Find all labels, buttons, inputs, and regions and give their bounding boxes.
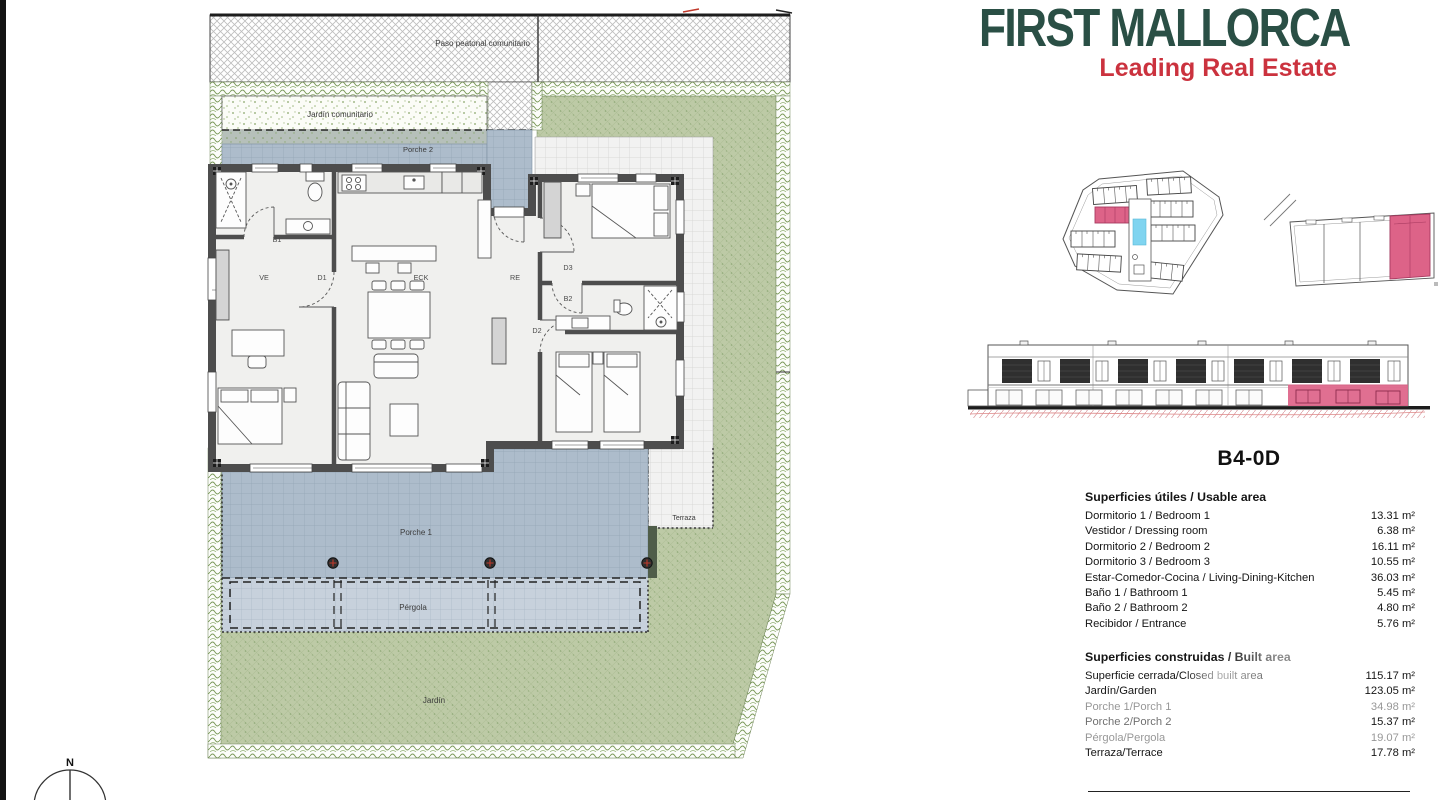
central-spine: [1129, 199, 1151, 281]
label-terraza: Terraza: [672, 515, 695, 522]
label-jardin: Jardín: [423, 696, 445, 705]
table-row: Terraza/Terrace17.78 m²: [1085, 746, 1415, 761]
room-d3: D3: [563, 263, 572, 272]
room-re: RE: [510, 273, 520, 282]
site-plan-overview: [1055, 163, 1235, 303]
table-row: Superficie cerrada/Closed built area115.…: [1085, 669, 1415, 684]
table-row: Pérgola/Pergola19.07 m²: [1085, 731, 1415, 746]
label-porche2: Porche 2: [403, 145, 433, 154]
table-row: Porche 2/Porch 215.37 m²: [1085, 715, 1415, 730]
built-table-title: Superficies construidas / Built area: [1085, 650, 1415, 664]
block-highlighted-unit: [1390, 214, 1430, 279]
compass-north-label: N: [66, 757, 74, 769]
table-row: Jardín/Garden123.05 m²: [1085, 684, 1415, 699]
built-area-table: Superficies construidas / Built area Sup…: [1085, 650, 1415, 761]
room-ve: VE: [259, 273, 269, 282]
label-jardin-comunitario: Jardín comunitario: [307, 110, 373, 119]
unit-code: B4-0D: [1085, 447, 1413, 471]
table-row: Dormitorio 2 / Bedroom 216.11 m²: [1085, 540, 1415, 555]
table-row: Porche 1/Porch 134.98 m²: [1085, 700, 1415, 715]
brochure-page: Paso peatonal comunitario Jardín comunit…: [0, 0, 1440, 800]
table-row: Baño 1 / Bathroom 15.45 m²: [1085, 586, 1415, 601]
label-porche1: Porche 1: [400, 528, 433, 537]
garden-wall-stub: [648, 526, 657, 578]
table-row: Baño 2 / Bathroom 24.80 m²: [1085, 601, 1415, 616]
elevation-highlighted-section: [1288, 385, 1408, 407]
usable-area-table: Superficies útiles / Usable area Dormito…: [1085, 490, 1415, 632]
brand-logo: FIRST MALLORCA Leading Real Estate: [979, 0, 1337, 83]
label-pergola: Pérgola: [399, 603, 427, 612]
room-b1: B1: [273, 235, 282, 244]
communal-garden: [222, 96, 532, 144]
floor-plan: Paso peatonal comunitario Jardín comunit…: [0, 0, 960, 800]
table-row: Vestidor / Dressing room6.38 m²: [1085, 524, 1415, 539]
usable-table-title: Superficies útiles / Usable area: [1085, 490, 1415, 504]
site-plan-block: [1262, 190, 1440, 290]
table-row: Dormitorio 1 / Bedroom 113.31 m²: [1085, 509, 1415, 524]
brand-name: FIRST MALLORCA: [979, 0, 1273, 56]
brand-tagline: Leading Real Estate: [979, 54, 1337, 83]
room-d2: D2: [532, 326, 541, 335]
pool: [1133, 219, 1146, 245]
room-b2: B2: [564, 294, 573, 303]
footer-rule: [1088, 791, 1410, 792]
table-row: Estar-Comedor-Cocina / Living-Dining-Kit…: [1085, 571, 1415, 586]
table-row: Dormitorio 3 / Bedroom 310.55 m²: [1085, 555, 1415, 570]
room-eck: ECK: [414, 273, 429, 282]
building-elevation: [960, 332, 1440, 424]
room-d1: D1: [317, 273, 326, 282]
table-row: Recibidor / Entrance5.76 m²: [1085, 617, 1415, 632]
house: [208, 164, 684, 472]
label-paso: Paso peatonal comunitario: [435, 39, 530, 48]
compass-icon: N: [34, 757, 106, 800]
